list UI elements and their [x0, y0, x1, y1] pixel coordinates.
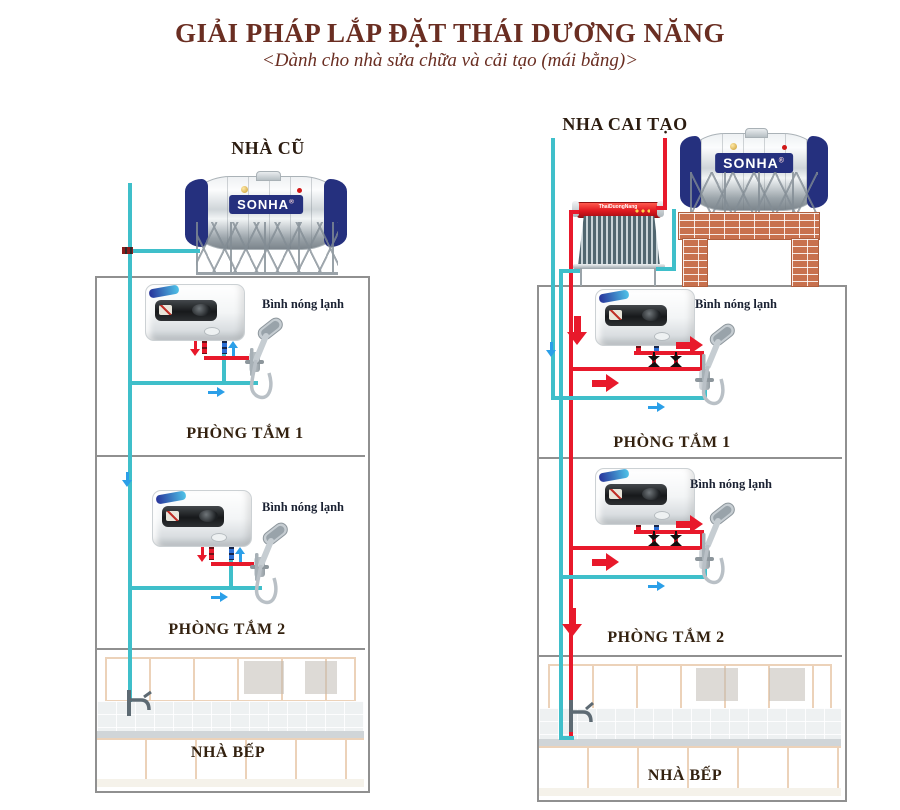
- cold-flow-right-arrow-icon: [211, 592, 228, 602]
- floor-divider: [96, 648, 365, 650]
- cold-flow-down-arrow-icon: [122, 472, 132, 487]
- collector-end-cap: [572, 201, 579, 217]
- cold-feed-to-tank: [130, 249, 200, 253]
- cold-pipe-bathroom1: [553, 396, 705, 400]
- kitchen-faucet: [124, 690, 158, 724]
- heater-button: [204, 327, 220, 336]
- right-column-header: NHA CAI TẠO: [562, 114, 687, 135]
- tank-brand-label: SONHA®: [715, 153, 793, 173]
- heater-label: Bình nóng lạnh: [262, 297, 344, 312]
- heater-label: Bình nóng lạnh: [695, 297, 777, 312]
- collector-star-dots-icon: [634, 209, 650, 213]
- cold-flow-right-arrow-icon: [208, 387, 225, 397]
- brick-pedestal-left-leg: [682, 238, 708, 287]
- heater-control-panel: [155, 300, 217, 321]
- room-label-bathroom2: PHÒNG TẮM 2: [607, 629, 724, 647]
- kitchen-faucet: [566, 700, 600, 740]
- cold-flow-down-arrow-icon: [546, 342, 556, 357]
- left-column-header: NHÀ CŨ: [231, 138, 305, 159]
- vacuum-tubes: [578, 216, 660, 266]
- tank-gold-seal-icon: [241, 186, 248, 193]
- tank-stand-right: [690, 172, 818, 212]
- room-label-kitchen: NHÀ BẾP: [191, 744, 265, 762]
- tank-red-mark-icon: [297, 188, 302, 193]
- room-label-bathroom1: PHÒNG TẮM 1: [186, 425, 303, 443]
- cold-water-riser-b: [559, 269, 563, 740]
- heater-knob: [192, 304, 211, 316]
- heater-gauge: [166, 511, 180, 521]
- cold-flow-right-arrow-icon: [648, 402, 665, 412]
- cold-flow-up-arrow-icon: [235, 547, 245, 562]
- pipe-union-fitting: [122, 247, 133, 254]
- hot-main-pipe: [571, 367, 704, 371]
- heater-knob: [642, 309, 661, 321]
- hot-water-riser: [569, 210, 573, 738]
- hot-outlet-from-collector: [571, 210, 579, 214]
- tank-top-flange: [256, 171, 281, 181]
- hot-flow-right-arrow-icon: [592, 553, 619, 571]
- heater-logo-stripe: [598, 289, 629, 303]
- vent-pipe: [663, 138, 667, 210]
- heater-knob: [642, 488, 661, 500]
- heater-logo-stripe: [148, 284, 179, 298]
- cold-flow-up-arrow-icon: [228, 341, 238, 356]
- heater-gauge: [159, 305, 173, 315]
- tank-top-flange: [745, 128, 768, 138]
- solar-collector: ThaiDuongNang: [576, 198, 660, 288]
- page-subtitle: <Dành cho nhà sửa chữa và cải tạo (mái b…: [0, 50, 900, 72]
- heater-gauge: [609, 489, 623, 499]
- floor-divider: [538, 655, 842, 657]
- cold-pipe-bathroom2: [561, 575, 705, 579]
- collector-leg: [580, 268, 582, 286]
- room-label-bathroom1: PHÒNG TẮM 1: [613, 434, 730, 452]
- hot-main-pipe: [571, 546, 704, 550]
- collector-brand-label: ThaiDuongNang: [599, 204, 638, 210]
- floor-divider: [96, 455, 365, 457]
- cold-feed-to-collector-right: [656, 267, 674, 271]
- poster-canvas: GIẢI PHÁP LẮP ĐẶT THÁI DƯƠNG NĂNG <Dành …: [0, 0, 900, 810]
- hot-flow-down-arrow-icon: [197, 547, 207, 562]
- cold-flow-right-arrow-icon: [648, 581, 665, 591]
- tank-stand-base: [196, 272, 338, 275]
- handheld-shower: [695, 322, 743, 410]
- heater-control-panel: [605, 305, 667, 326]
- water-heater: [145, 284, 245, 341]
- heater-button: [211, 533, 227, 542]
- cold-pipe-bathroom1: [130, 381, 258, 385]
- registered-mark: ®: [289, 199, 295, 206]
- heater-logo-stripe: [155, 490, 186, 504]
- cold-feed-from-tank: [672, 209, 676, 271]
- heater-logo-stripe: [598, 468, 629, 482]
- cold-water-riser-a: [551, 138, 555, 400]
- hot-flow-down-arrow-icon: [190, 341, 200, 356]
- tank-stand-left: [196, 222, 338, 274]
- page-title: GIẢI PHÁP LẮP ĐẶT THÁI DƯƠNG NĂNG: [0, 18, 900, 49]
- brick-pedestal-beam: [678, 212, 820, 240]
- cold-pipe-bathroom2: [130, 586, 262, 590]
- hot-flow-down-arrow-icon: [562, 608, 582, 637]
- registered-mark: ®: [779, 158, 785, 165]
- heater-label: Bình nóng lạnh: [690, 477, 772, 492]
- handheld-shower: [243, 316, 291, 404]
- handheld-shower: [248, 521, 296, 609]
- tank-brand-text: SONHA: [237, 197, 289, 212]
- cold-feed-to-collector-left: [561, 269, 580, 273]
- room-label-bathroom2: PHÒNG TẮM 2: [168, 621, 285, 639]
- heater-button: [654, 332, 670, 341]
- heater-knob: [199, 510, 218, 522]
- collector-base-bar: [573, 264, 665, 269]
- floor-divider: [538, 457, 842, 459]
- heater-gauge: [609, 310, 623, 320]
- cold-water-riser-left: [128, 183, 132, 702]
- heater-control-panel: [605, 484, 667, 505]
- water-heater: [152, 490, 252, 547]
- vent-pipe-elbow: [656, 206, 667, 210]
- brick-pedestal-right-leg: [791, 238, 819, 287]
- hot-flow-right-arrow-icon: [592, 374, 619, 392]
- tank-brand-text: SONHA: [723, 155, 779, 171]
- hot-flow-down-arrow-icon: [567, 316, 587, 345]
- handheld-shower: [695, 501, 743, 589]
- heater-button: [654, 511, 670, 520]
- tank-brand-label: SONHA®: [229, 195, 303, 214]
- heater-label: Bình nóng lạnh: [262, 500, 344, 515]
- tank-red-mark-icon: [782, 145, 787, 150]
- heater-control-panel: [162, 506, 224, 527]
- room-label-kitchen: NHÀ BẾP: [648, 767, 722, 785]
- tank-gold-seal-icon: [730, 143, 737, 150]
